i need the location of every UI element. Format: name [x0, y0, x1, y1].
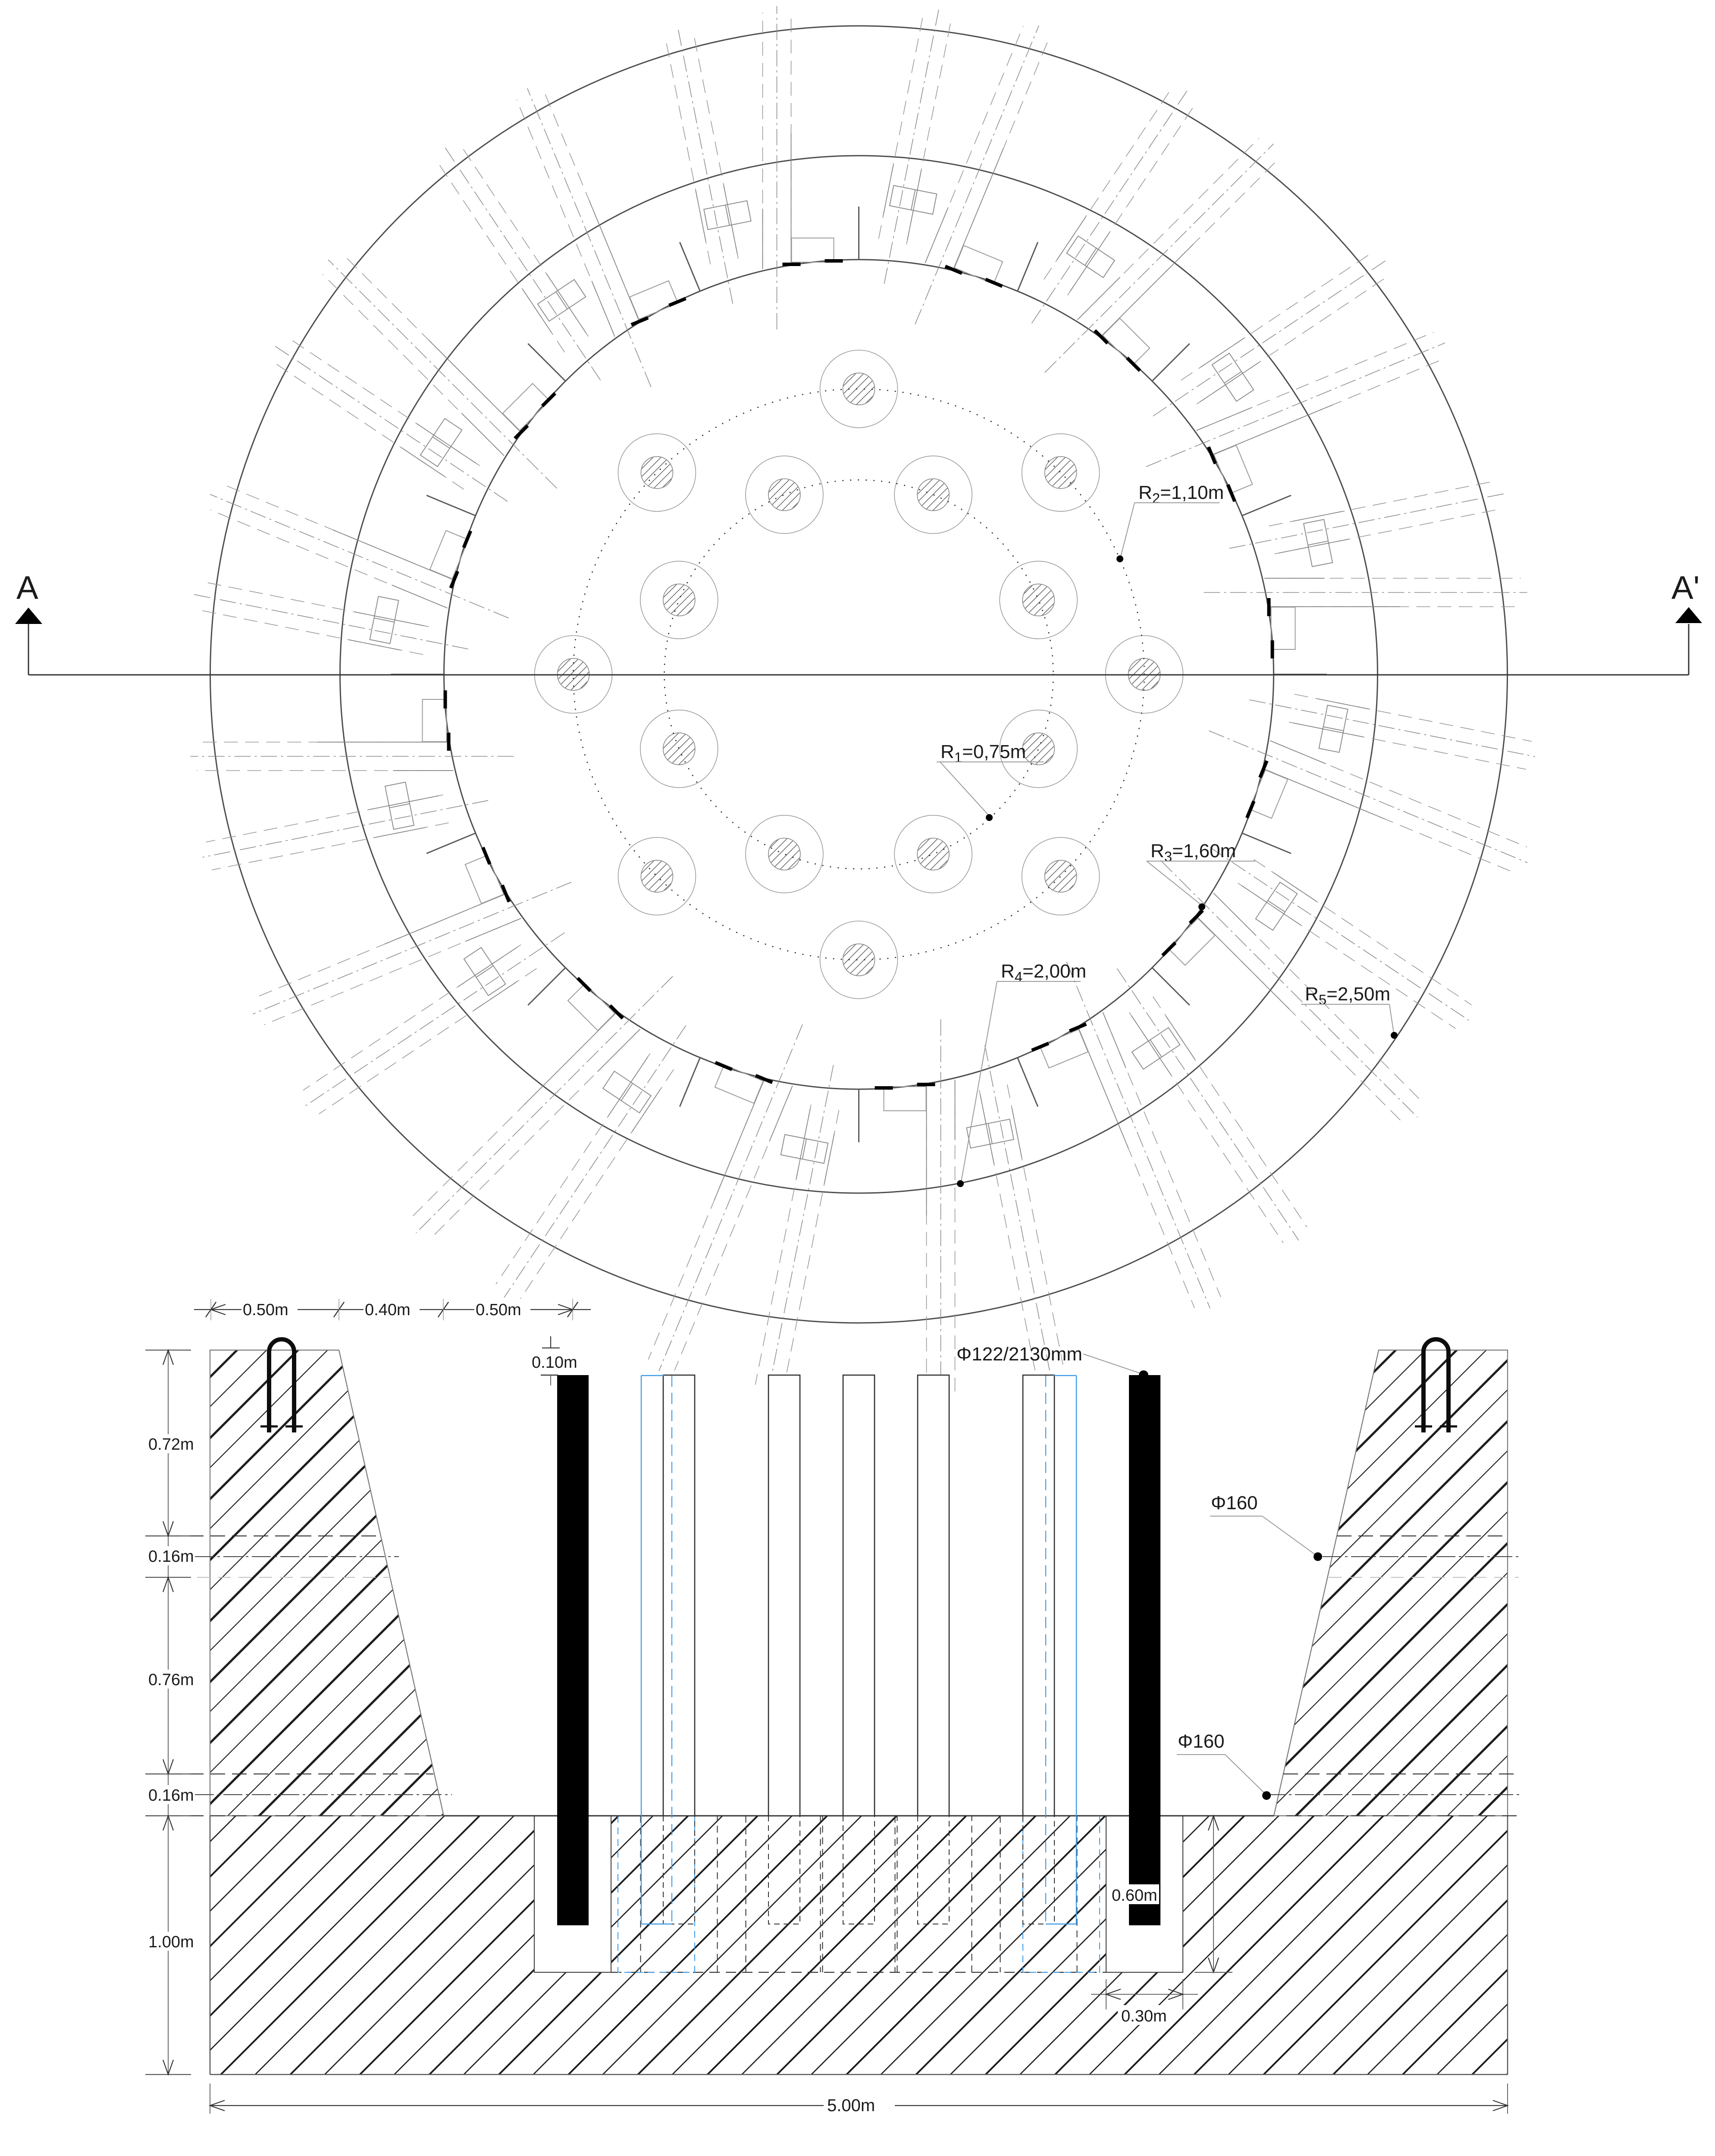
svg-text:0.40m: 0.40m — [365, 1301, 411, 1319]
svg-text:0.30m: 0.30m — [1121, 2007, 1167, 2025]
svg-text:0.50m: 0.50m — [476, 1301, 521, 1319]
svg-text:5.00m: 5.00m — [827, 2096, 875, 2115]
svg-text:Φ160: Φ160 — [1178, 1731, 1225, 1752]
svg-text:0.16m: 0.16m — [148, 1548, 194, 1566]
svg-text:0.10m: 0.10m — [532, 1354, 577, 1372]
svg-text:A': A' — [1671, 570, 1699, 606]
svg-text:0.72m: 0.72m — [148, 1435, 194, 1454]
svg-text:0.60m: 0.60m — [1112, 1887, 1157, 1905]
svg-text:0.50m: 0.50m — [243, 1301, 288, 1319]
svg-text:A: A — [16, 570, 38, 606]
svg-text:Φ160: Φ160 — [1211, 1492, 1258, 1514]
svg-text:0.16m: 0.16m — [148, 1786, 194, 1805]
svg-text:Φ122/2130mm: Φ122/2130mm — [956, 1344, 1082, 1365]
svg-text:1.00m: 1.00m — [148, 1933, 194, 1951]
svg-text:0.76m: 0.76m — [148, 1671, 194, 1689]
